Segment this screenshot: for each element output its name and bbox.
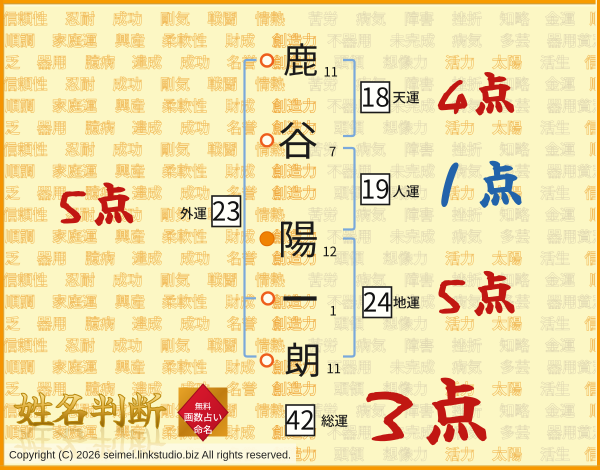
svg-text:Copyright (C) 2026 seimei.link: Copyright (C) 2026 seimei.linkstudio.biz… — [9, 450, 291, 462]
